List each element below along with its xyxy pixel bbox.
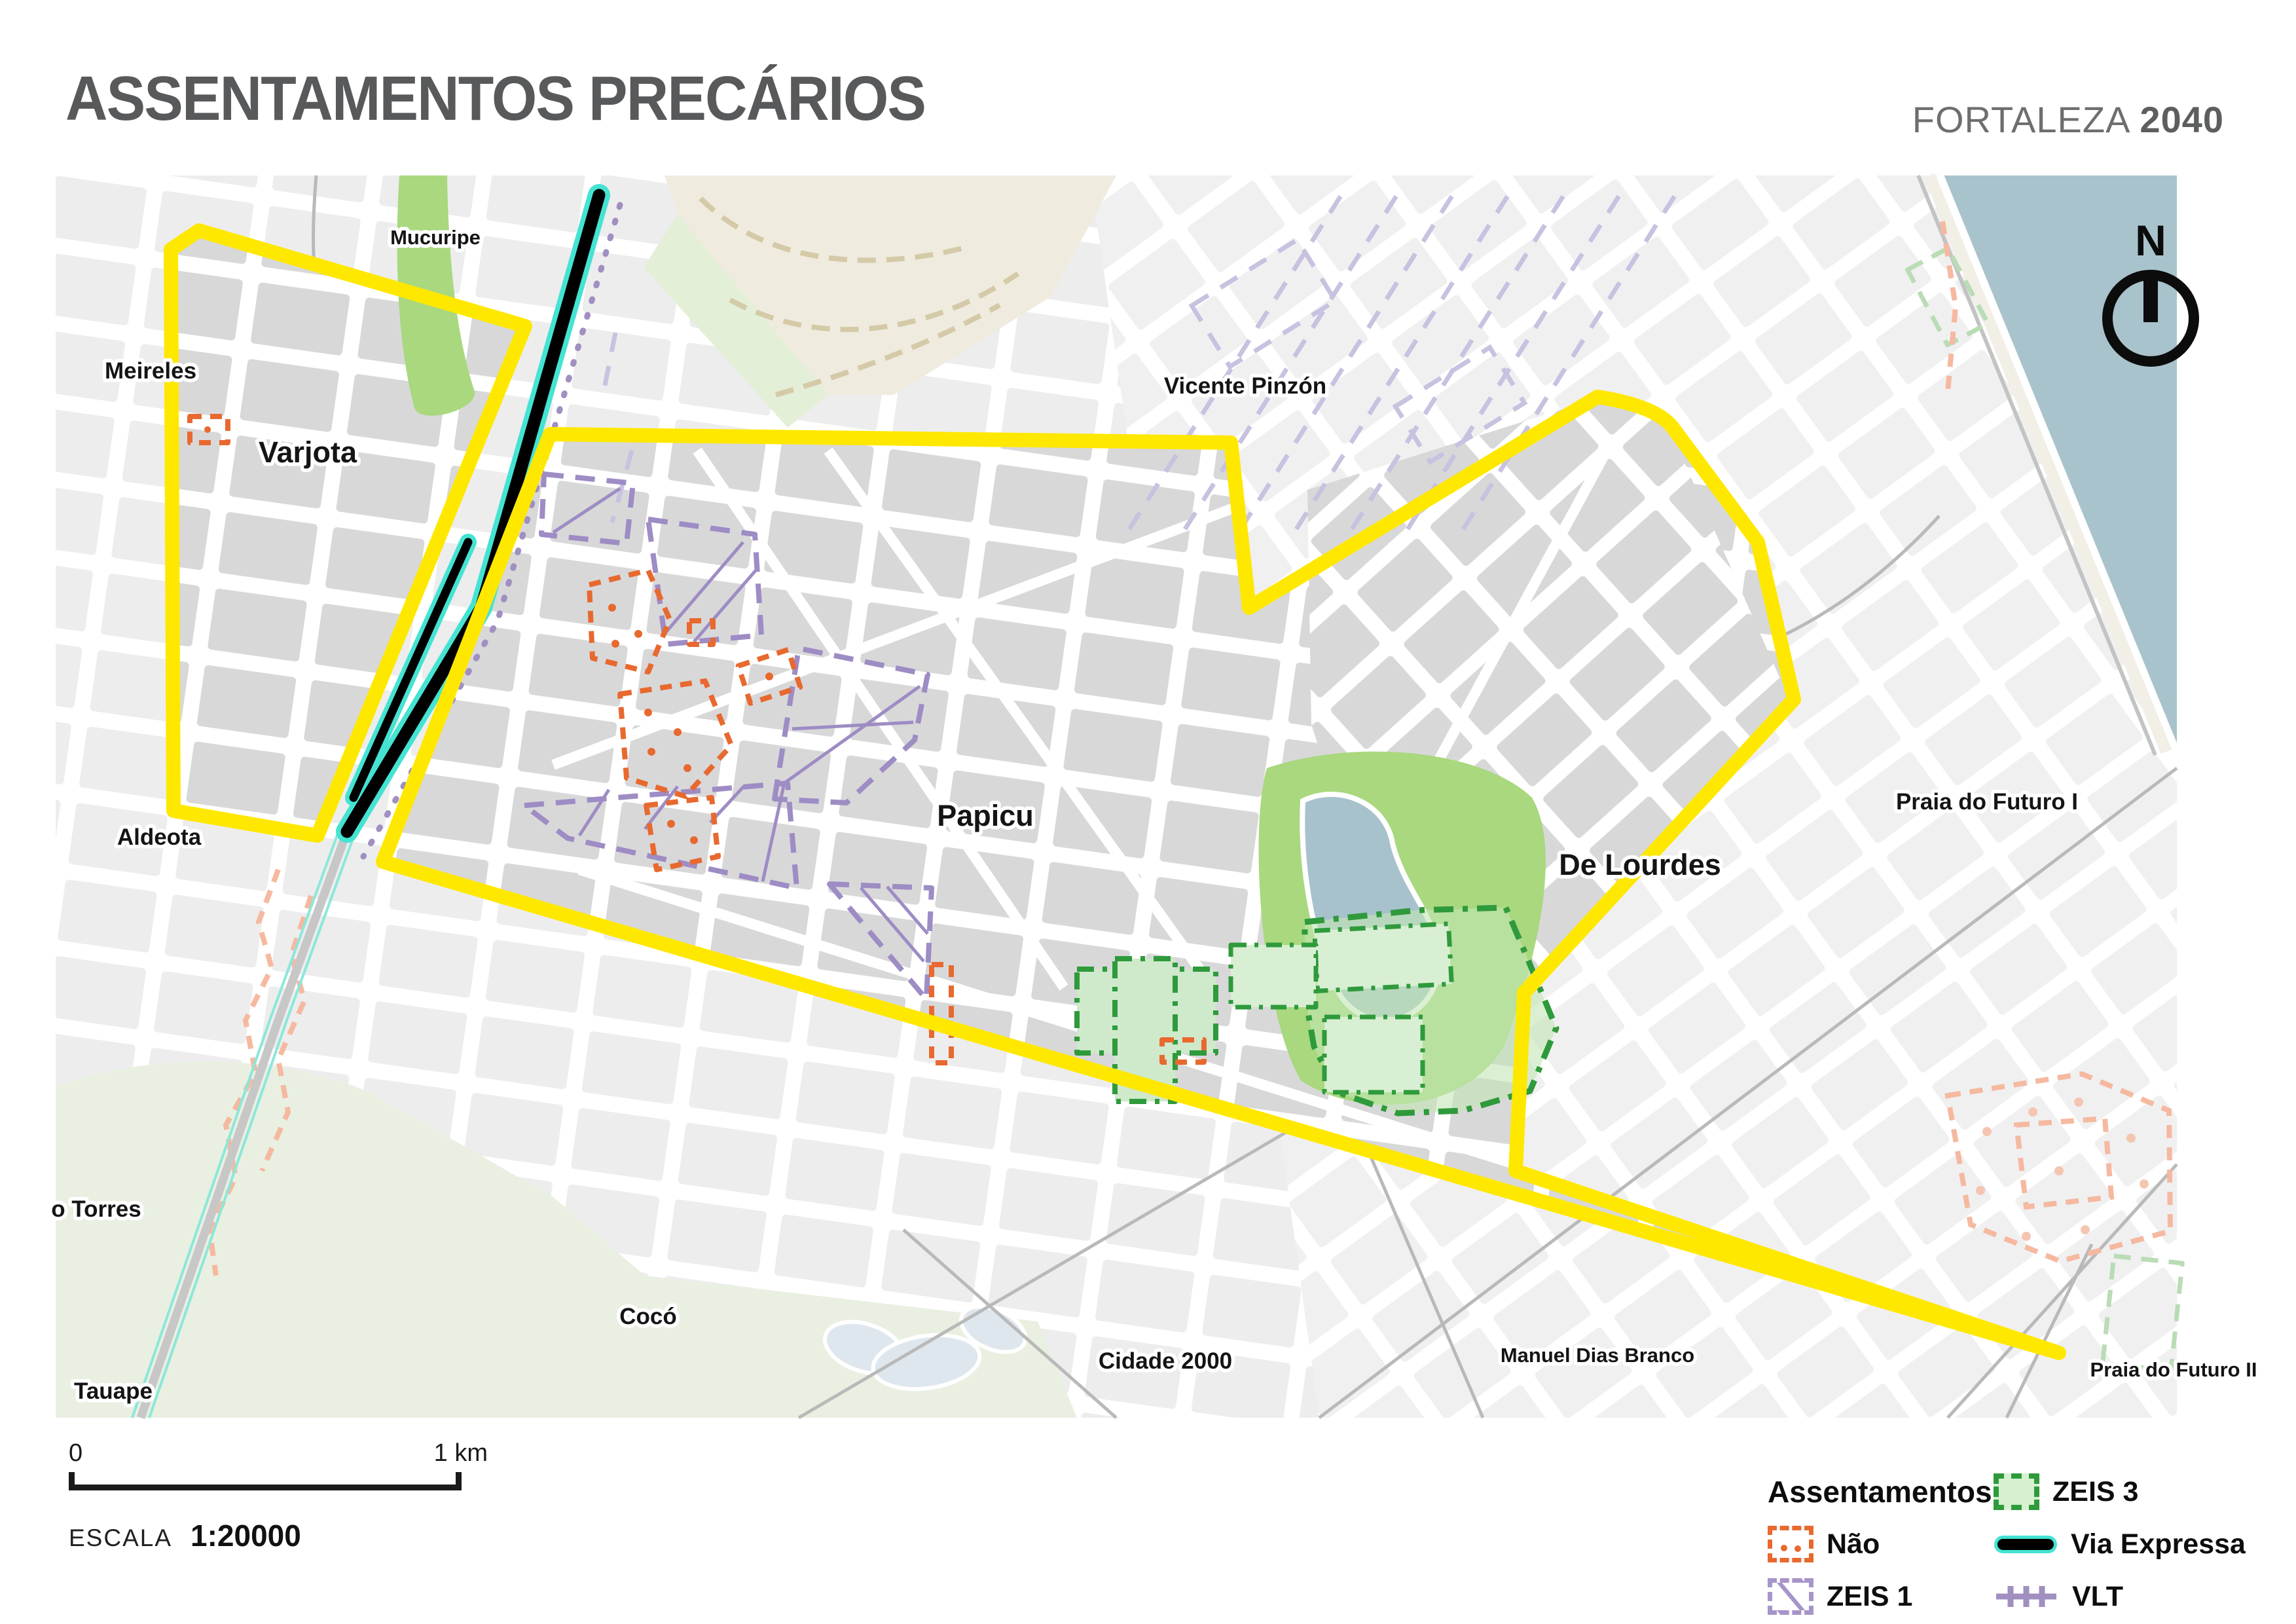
- legend-label: ZEIS 1: [1827, 1581, 1912, 1613]
- legend-label: Via Expressa: [2071, 1528, 2246, 1560]
- label-papicu: Papicu: [937, 799, 1034, 832]
- scale-bar: 0 1 km: [69, 1439, 488, 1490]
- label-varjota: Varjota: [259, 435, 357, 469]
- label-coco: Cocó: [619, 1304, 677, 1329]
- scale-start: 0: [69, 1439, 82, 1467]
- label-meireles: Meireles: [105, 358, 196, 384]
- legend-item-via-expressa: Via Expressa: [1994, 1528, 2296, 1560]
- label-praia-do-futuro-1: Praia do Futuro I: [1896, 789, 2078, 815]
- vlt-swatch-icon: [1994, 1582, 2059, 1611]
- nao-swatch-icon: [1768, 1526, 1813, 1562]
- zeis3-swatch-icon: [1994, 1473, 2039, 1510]
- scale-ratio: 1:20000: [191, 1519, 301, 1553]
- page-title: ASSENTAMENTOS PRECÁRIOS: [65, 63, 925, 135]
- legend-item-nao: Não: [1768, 1526, 1994, 1562]
- legend-item-vlt: VLT: [1994, 1581, 2296, 1613]
- zeis1-swatch-icon: [1768, 1578, 1813, 1615]
- label-cidade-2000: Cidade 2000: [1099, 1348, 1232, 1374]
- via-expressa-swatch-icon: [1997, 1539, 2054, 1550]
- legend-item-zeis1: ZEIS 1: [1768, 1578, 1994, 1615]
- scale-label: ESCALA: [69, 1524, 172, 1551]
- scale-end: 1 km: [434, 1439, 488, 1467]
- legend-label: Não: [1827, 1528, 1880, 1560]
- label-praia-do-futuro-2: Praia do Futuro II: [2090, 1358, 2257, 1381]
- scale-bar-line: [69, 1485, 462, 1490]
- label-tauape: Tauape: [74, 1378, 153, 1404]
- label-mucuripe: Mucuripe: [390, 226, 481, 249]
- legend-label: VLT: [2072, 1581, 2123, 1613]
- label-de-lourdes: De Lourdes: [1559, 848, 1721, 881]
- legend-item-zeis3: ZEIS 3: [1994, 1473, 2296, 1510]
- legend: Assentamentos ZEIS 3 Não Via Expressa ZE…: [1768, 1466, 2296, 1623]
- map-canvas: N Mucuripe Meireles Varjota Vicente Pinz…: [56, 175, 2177, 1418]
- legend-header: Assentamentos: [1768, 1474, 1994, 1509]
- poster-page: ASSENTAMENTOS PRECÁRIOS FORTALEZA2040: [0, 0, 2296, 1624]
- scale-ratio-row: ESCALA1:20000: [69, 1518, 301, 1553]
- label-manuel-dias-branco: Manuel Dias Branco: [1501, 1344, 1694, 1367]
- brand-year: 2040: [2140, 99, 2224, 140]
- brand-city: FORTALEZA: [1912, 99, 2131, 140]
- label-aldeota: Aldeota: [117, 824, 202, 850]
- north-label: N: [2135, 216, 2166, 265]
- label-dionisio-torres: o Torres: [51, 1196, 141, 1222]
- brand: FORTALEZA2040: [1912, 98, 2224, 141]
- legend-label: ZEIS 3: [2052, 1476, 2138, 1508]
- label-vicente-pinzon: Vicente Pinzón: [1164, 373, 1326, 399]
